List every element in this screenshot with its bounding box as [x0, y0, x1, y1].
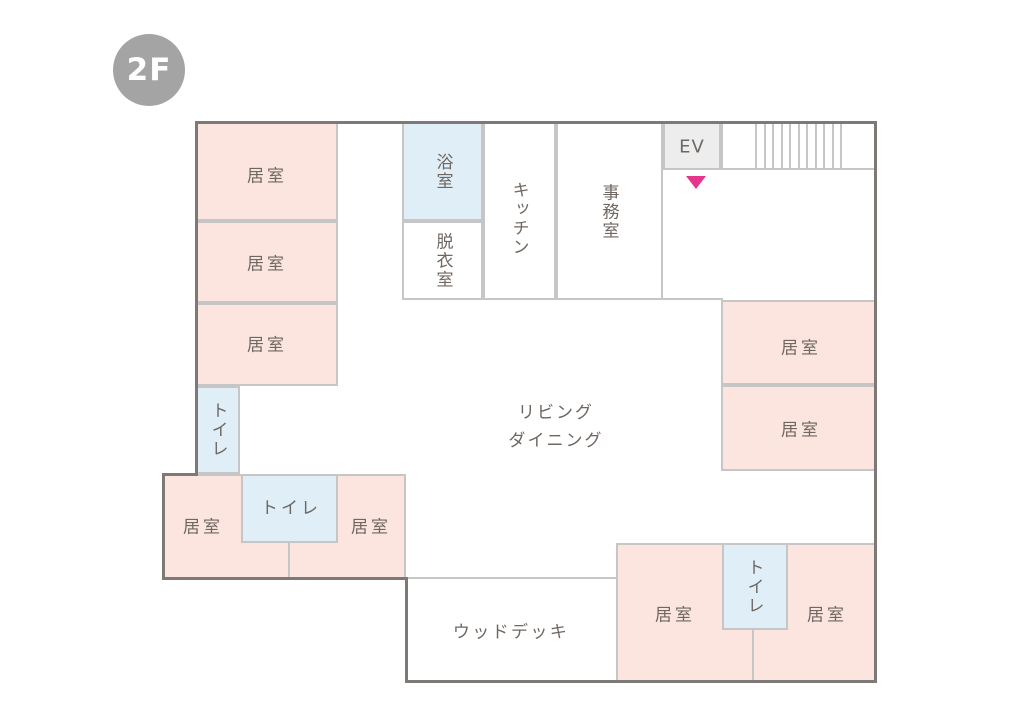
se-room-left-label: 居室: [655, 601, 695, 626]
room-left-3-label: 居室: [247, 331, 287, 356]
stair-tread-line: [798, 124, 800, 168]
wood-deck-north-wall: [406, 577, 618, 579]
bathroom-label: 浴室: [431, 153, 456, 191]
toilet-west-label: トイレ: [206, 401, 231, 458]
living-dining-label-line1: リビング: [518, 403, 594, 423]
elevator-label: EV: [679, 137, 705, 158]
living-dining-label-line2: ダイニング: [508, 431, 603, 451]
stair-tread-line: [806, 124, 808, 168]
stair-tread-line: [755, 124, 757, 168]
stair-tread-line: [840, 124, 842, 168]
stair-tread-line: [772, 124, 774, 168]
hall-south-wall: [663, 298, 723, 300]
room-right-2-label: 居室: [781, 416, 821, 441]
kitchen-label: キッチン: [507, 181, 532, 257]
room-left-1-label: 居室: [247, 162, 287, 187]
se-room-right-label: 居室: [807, 601, 847, 626]
stair-tread-line: [789, 124, 791, 168]
sw-room-left-label: 居室: [183, 513, 223, 538]
stair-treads: [755, 124, 842, 168]
toilet-southwest-label: トイレ: [261, 494, 321, 519]
floor-plan-page: 2F 居室 居室 居室 浴室 脱衣室 キッチン 事務室 EV リビング ダイニ: [0, 0, 1024, 707]
room-left-2-label: 居室: [247, 250, 287, 275]
stair-tread-line: [764, 124, 766, 168]
room-right-1-label: 居室: [781, 334, 821, 359]
stair-tread-line: [832, 124, 834, 168]
stair-tread-line: [815, 124, 817, 168]
toilet-southeast-label: トイレ: [742, 558, 767, 615]
stair-tread-line: [823, 124, 825, 168]
dressing-room-label: 脱衣室: [431, 232, 456, 289]
southwest-divider-wall: [288, 543, 290, 579]
sw-room-right-label: 居室: [351, 513, 391, 538]
living-dining-label: リビング ダイニング: [508, 399, 603, 455]
stairs-direction-marker-icon: [686, 176, 706, 189]
southeast-divider-wall: [752, 630, 754, 682]
office-label: 事務室: [597, 183, 622, 240]
stair-tread-line: [781, 124, 783, 168]
wood-deck-label: ウッドデッキ: [453, 618, 569, 643]
